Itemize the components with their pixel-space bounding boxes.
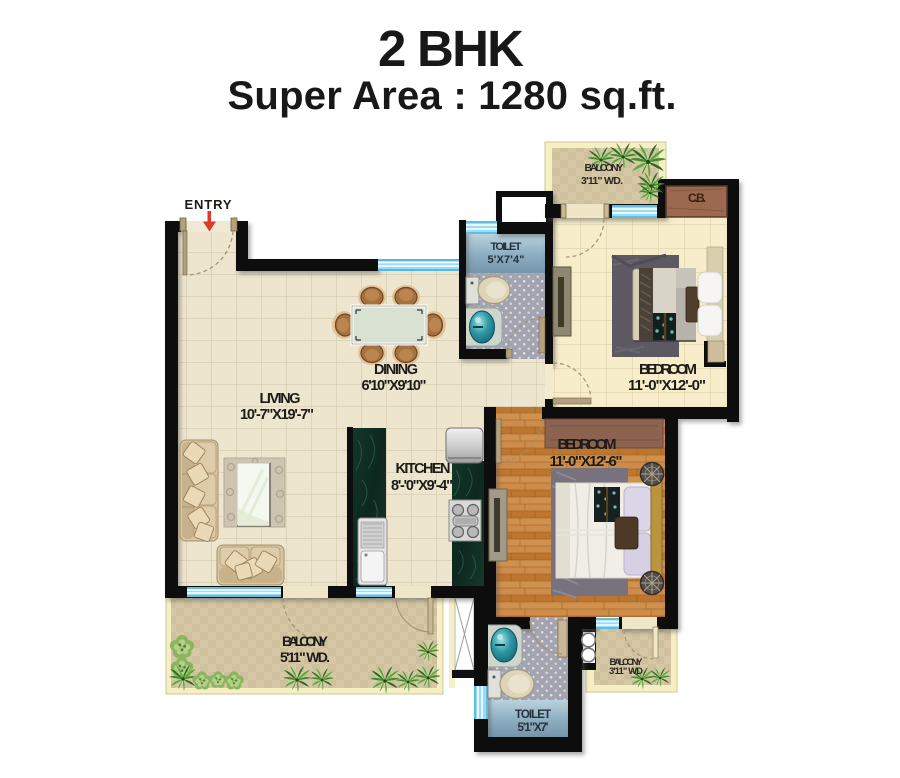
svg-text:BEDROOM: BEDROOM <box>558 436 617 453</box>
svg-text:3'11" WD.: 3'11" WD. <box>581 175 623 187</box>
svg-text:11'-0"X12'-0": 11'-0"X12'-0" <box>628 377 706 394</box>
svg-text:6'10"X9'10": 6'10"X9'10" <box>362 378 427 394</box>
svg-text:BALCONY: BALCONY <box>282 633 329 649</box>
svg-text:ENTRY: ENTRY <box>185 197 232 212</box>
svg-text:TOILET: TOILET <box>515 709 551 721</box>
svg-text:5'X7'4": 5'X7'4" <box>488 254 525 266</box>
svg-text:BALCONY: BALCONY <box>585 162 624 174</box>
svg-text:KITCHEN: KITCHEN <box>396 461 451 477</box>
svg-text:3'11" WD: 3'11" WD <box>609 666 643 677</box>
svg-text:C.B.: C.B. <box>688 191 706 205</box>
svg-text:LIVING: LIVING <box>260 391 301 407</box>
svg-text:Super Area : 1280 sq.ft.: Super Area : 1280 sq.ft. <box>228 74 677 118</box>
svg-text:DINING: DINING <box>374 362 418 378</box>
svg-text:11'-0"X12'-6": 11'-0"X12'-6" <box>550 453 623 470</box>
svg-text:5'1"X7': 5'1"X7' <box>518 722 549 734</box>
svg-text:BEDROOM: BEDROOM <box>639 361 697 378</box>
svg-text:2 BHK: 2 BHK <box>378 20 524 77</box>
svg-text:5'11" WD.: 5'11" WD. <box>280 649 330 665</box>
svg-text:TOILET: TOILET <box>491 241 522 253</box>
svg-text:10'-7"X19'-7": 10'-7"X19'-7" <box>240 407 314 423</box>
svg-text:8'-'0"X9'-4": 8'-'0"X9'-4" <box>391 478 453 494</box>
